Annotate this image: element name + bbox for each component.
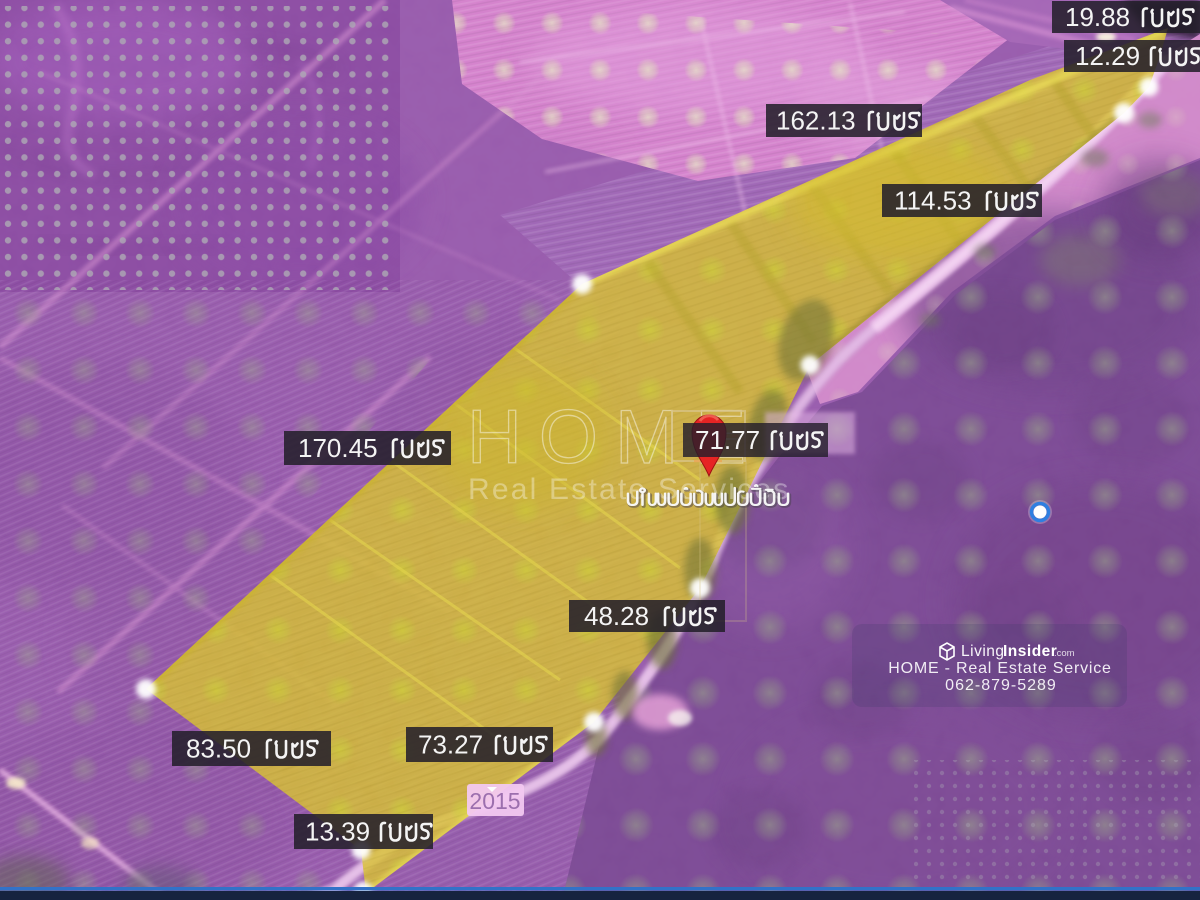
svg-text:48.28: 48.28 xyxy=(584,601,649,631)
svg-text:HOME - Real Estate Service: HOME - Real Estate Service xyxy=(888,660,1112,677)
svg-text:.com: .com xyxy=(1054,648,1075,659)
svg-text:2015: 2015 xyxy=(469,788,520,814)
svg-text:114.53: 114.53 xyxy=(894,186,972,216)
svg-text:12.29: 12.29 xyxy=(1075,41,1140,71)
svg-text:71.77: 71.77 xyxy=(695,425,760,455)
svg-text:83.50: 83.50 xyxy=(186,734,251,764)
svg-text:162.13: 162.13 xyxy=(776,106,856,136)
svg-text:73.27: 73.27 xyxy=(418,730,483,760)
svg-text:13.39: 13.39 xyxy=(305,817,370,847)
svg-text:Insider: Insider xyxy=(1003,643,1057,660)
svg-text:Living: Living xyxy=(961,643,1005,660)
svg-text:170.45: 170.45 xyxy=(298,433,378,463)
svg-text:19.88: 19.88 xyxy=(1065,2,1130,32)
svg-text:062-879-5289: 062-879-5289 xyxy=(945,677,1057,694)
